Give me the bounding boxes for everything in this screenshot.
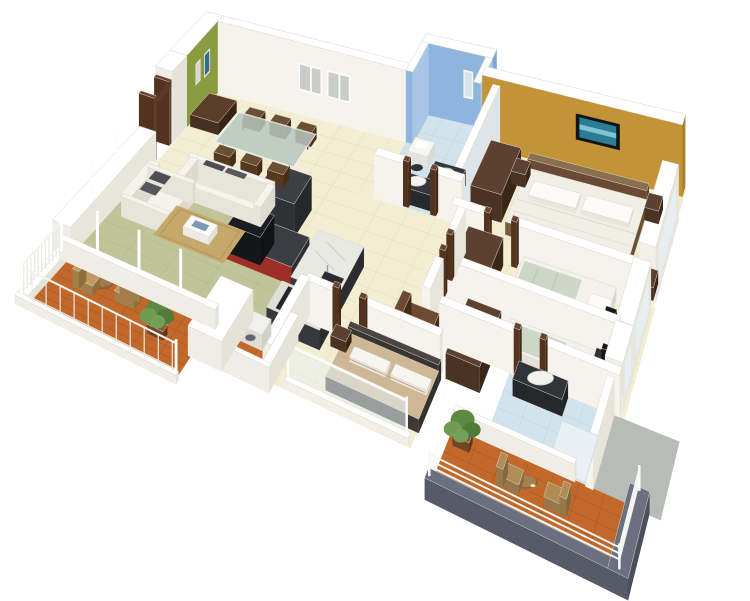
- door-post: [403, 156, 411, 208]
- floor-plan-canvas: [0, 0, 750, 601]
- door-post: [430, 164, 438, 217]
- door-post: [446, 228, 454, 281]
- plant: [453, 429, 469, 443]
- bathroom-wall: [374, 148, 407, 208]
- plant: [149, 315, 165, 329]
- floor-plan-rendering: [0, 0, 750, 601]
- door-post: [511, 215, 519, 268]
